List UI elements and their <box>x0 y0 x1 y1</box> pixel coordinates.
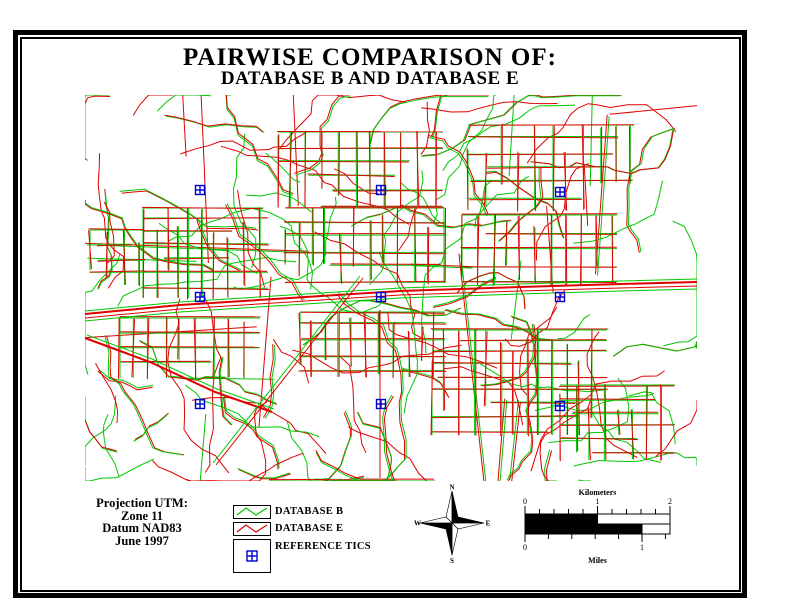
scalebar-kilometers-label: Kilometers <box>579 488 617 497</box>
scalebar-miles-label: Miles <box>588 556 607 565</box>
scalebar-km-2: 2 <box>668 497 672 506</box>
compass-south-label: S <box>450 557 454 565</box>
projection-line: Projection UTM: <box>76 497 208 510</box>
compass-north-label: N <box>449 484 454 492</box>
legend-label-reference-tics: REFERENCE TICS <box>275 541 371 552</box>
map-canvas <box>85 95 697 481</box>
scalebar-km-1: 1 <box>596 497 600 506</box>
reference-tic-icon <box>556 188 565 197</box>
road-network <box>85 95 697 481</box>
scalebar-bars <box>525 514 670 534</box>
compass-rose-icon: N E S W <box>413 483 493 567</box>
reference-tic-icon <box>196 186 205 195</box>
reference-tic-icon <box>377 400 386 409</box>
projection-line: Datum NAD83 <box>76 522 208 535</box>
scale-bar: Kilometers 0 1 2 0 1 Miles <box>500 486 700 566</box>
page-subtitle: DATABASE B AND DATABASE E <box>13 68 727 90</box>
legend-swatch-reference-tics <box>233 539 271 573</box>
compass-east-label: E <box>486 520 491 528</box>
compass-west-label: W <box>414 520 421 528</box>
map-layout-page: PAIRWISE COMPARISON OF: DATABASE B AND D… <box>0 0 792 612</box>
legend-swatch-database-e <box>233 522 271 536</box>
legend-label-database-b: DATABASE B <box>275 506 343 517</box>
scalebar-km-0: 0 <box>523 497 527 506</box>
projection-line: June 1997 <box>76 535 208 548</box>
legend-swatch-database-b <box>233 505 271 519</box>
projection-info: Projection UTM: Zone 11 Datum NAD83 June… <box>76 497 208 547</box>
legend-label-database-e: DATABASE E <box>275 523 343 534</box>
scalebar-mi-1: 1 <box>640 543 644 552</box>
reference-tic-icon <box>377 293 386 302</box>
scalebar-mi-0: 0 <box>523 543 527 552</box>
reference-tic-icon <box>556 293 565 302</box>
